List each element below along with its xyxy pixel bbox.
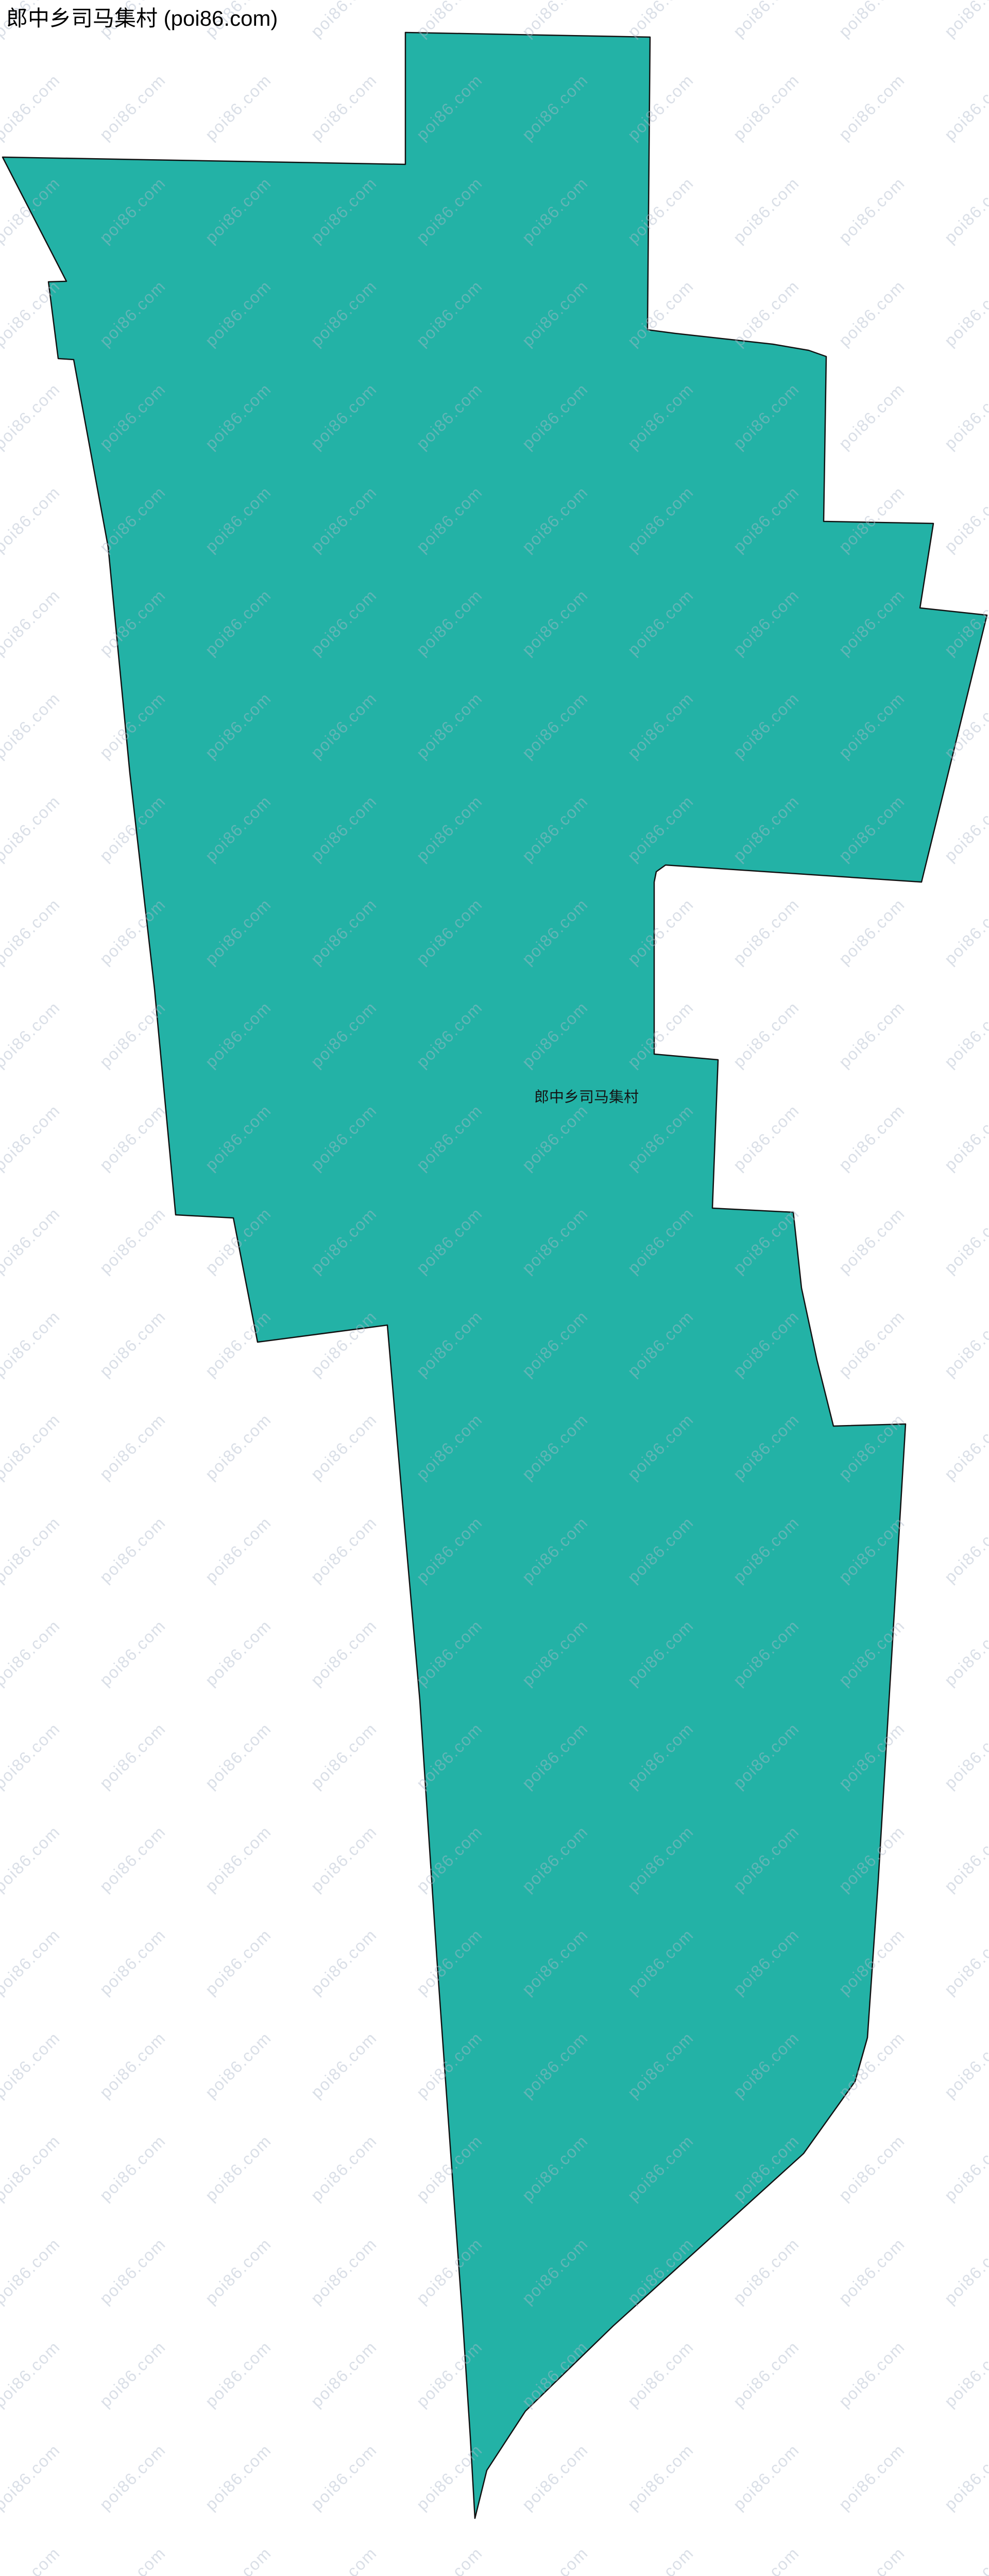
region-label: 郎中乡司马集村 bbox=[534, 1085, 639, 1107]
village-boundary-polygon bbox=[3, 32, 987, 2518]
page-title: 郎中乡司马集村 (poi86.com) bbox=[6, 5, 278, 32]
village-boundary-map bbox=[0, 0, 989, 2576]
